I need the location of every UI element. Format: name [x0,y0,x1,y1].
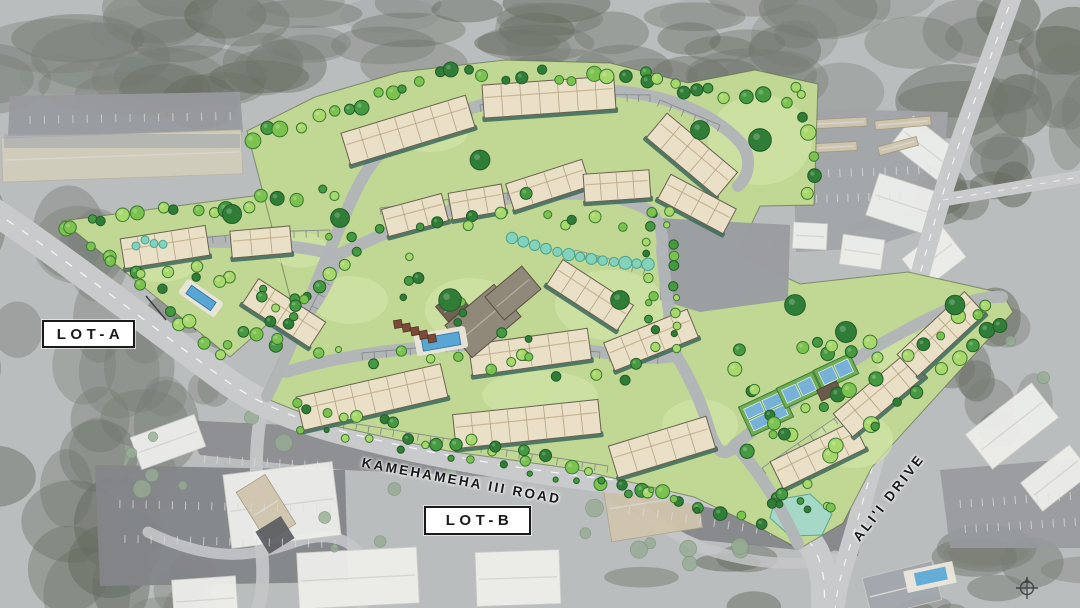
tree-highlight [680,89,684,93]
tree [872,352,883,363]
tree-highlight [753,133,760,140]
tree [664,222,670,228]
tree-highlight [316,112,320,116]
tree-highlight [353,413,357,417]
tree [486,364,497,375]
tree [439,289,461,311]
tree [672,344,680,352]
tree-highlight [781,430,785,434]
tree [198,337,210,349]
tree [430,438,443,451]
teal-shrub [575,252,584,261]
tree [756,87,771,102]
tree [539,449,551,461]
tree [86,242,95,251]
tree-highlight [253,330,257,334]
tree [828,438,843,453]
tree-highlight [389,89,393,93]
tree [665,207,675,217]
tree-highlight [185,317,189,321]
tree [651,73,662,84]
tree [302,405,311,414]
tree-highlight [654,75,657,78]
tree [398,85,406,93]
tree-highlight [867,420,872,425]
tree-highlight [292,302,295,305]
tree [168,205,178,215]
tree-highlight [874,354,877,357]
tree [656,485,670,499]
tree [537,65,546,74]
tree [567,77,576,86]
tree-highlight [831,441,835,445]
tree [756,519,767,530]
tree [470,150,490,170]
tree [767,499,777,509]
tree [871,422,879,430]
tree [331,209,350,228]
tree-highlight [956,354,960,358]
tree [691,84,703,96]
tree-highlight [274,336,277,339]
tree-highlight [246,204,249,207]
tree [290,193,303,206]
tree [555,75,564,84]
tree [414,77,424,87]
tree [448,455,454,461]
tree-highlight [742,93,746,97]
tree [352,247,361,256]
tree-highlight [614,294,620,300]
tree-highlight [804,128,809,133]
tree [194,205,205,216]
tree [671,79,681,89]
tree [631,358,642,369]
tree [718,92,729,103]
teal-shrub [632,259,642,269]
tree [344,104,354,114]
tree [502,76,510,84]
tree [651,342,660,351]
tree [694,507,700,513]
tree [740,90,754,104]
tree [516,72,528,84]
tree [565,460,579,474]
teal-shrub [506,232,518,244]
tree [490,441,501,452]
tree-highlight [840,326,846,332]
tree [527,471,532,476]
tree-highlight [273,194,277,198]
tree [105,256,116,267]
tree [223,340,232,349]
tree [254,189,267,202]
tree [845,346,857,358]
teal-shrub [598,256,607,265]
tree [809,152,819,162]
tree [375,224,384,233]
tree-highlight [982,302,985,305]
tree-highlight [644,490,647,493]
tree-highlight [66,224,70,228]
tree-highlight [904,352,908,356]
tree [351,410,363,422]
tree [863,335,877,349]
tree-highlight [982,326,987,331]
tree [319,185,327,193]
tree [272,121,288,137]
tree-highlight [592,213,596,217]
tree-highlight [240,329,243,332]
tree [673,322,681,330]
tree-highlight [716,509,720,513]
tree [808,169,822,183]
tree [669,282,678,291]
tree [910,386,923,399]
tree [466,434,477,445]
tree-highlight [434,219,437,222]
tree-highlight [622,72,626,76]
tree [130,206,144,220]
building-row [581,170,653,207]
tree [463,221,473,231]
tree [238,326,249,337]
tree [713,507,727,521]
tree-highlight [432,441,436,445]
tree [945,295,965,315]
tree-highlight [316,283,320,287]
tree [158,284,167,293]
tree [567,215,576,224]
tree [645,315,653,323]
tree [620,375,630,385]
tree-highlight [469,213,472,216]
tree-highlight [293,196,297,200]
tree-highlight [133,209,137,213]
tree [454,352,463,361]
tree [813,337,823,347]
tree [782,97,793,108]
tree [244,202,255,213]
tree [257,291,268,302]
tree-highlight [165,269,168,272]
tree [422,441,430,449]
tree [162,266,173,277]
tree [649,487,654,492]
tree [646,222,656,232]
tree [826,340,838,352]
tree [797,90,805,98]
tree [737,511,746,520]
tree-highlight [196,207,199,210]
teal-shrub [150,240,158,248]
tree-highlight [828,343,831,346]
tree [937,332,945,340]
tree [497,328,507,338]
tree-highlight [751,386,754,389]
tree-highlight [644,77,648,81]
tree [296,123,306,133]
tree [768,417,781,430]
tree-highlight [693,86,697,90]
tree [797,498,804,505]
tree-highlight [257,192,261,196]
tree-highlight [316,350,319,353]
tree [691,121,710,140]
tree [734,344,746,356]
tree-highlight [778,491,782,495]
tree-highlight [119,211,123,215]
tree [800,125,815,140]
tree [403,434,414,445]
tree-highlight [226,208,232,214]
tree [166,307,176,317]
tree-highlight [488,366,491,369]
tree-highlight [326,270,330,274]
tree [525,336,532,343]
tree-highlight [913,389,917,393]
cabana [410,327,419,336]
tree [804,506,811,513]
tree [803,480,812,489]
tree [326,233,333,240]
tree-highlight [518,74,522,78]
tree [116,208,130,222]
tree [669,261,679,271]
tree-highlight [633,361,636,364]
tree [776,501,783,508]
tree-highlight [194,263,197,266]
tree-highlight [334,212,340,218]
tree [335,347,341,353]
tree [459,309,467,317]
tree-highlight [810,172,814,176]
tree-highlight [275,124,280,129]
tree [584,467,592,475]
tree [216,350,226,360]
tree-highlight [390,419,393,422]
tree-highlight [415,275,418,278]
tree [365,435,373,443]
tree [265,316,276,327]
tree-highlight [478,72,482,76]
tree [643,250,650,257]
tree [222,204,241,223]
teal-shrub [619,256,632,269]
tree [785,295,806,316]
tree-highlight [845,386,849,390]
tree [245,133,261,149]
tree [673,295,679,301]
tree [645,299,651,305]
tree [182,314,196,328]
tree [290,312,298,320]
tree [443,62,458,77]
tree-highlight [619,482,622,485]
teal-shrub [553,247,562,256]
tree [836,322,857,343]
tree-highlight [996,321,1000,325]
tree [893,398,902,407]
tree [323,409,332,418]
tree [465,65,474,74]
tree-highlight [975,312,978,315]
tree-highlight [590,69,595,74]
tree [426,355,435,364]
tree-highlight [405,436,408,439]
tree [416,223,424,231]
tree [819,403,828,412]
tree [191,261,203,273]
tree [296,426,304,434]
tree [749,384,760,395]
tree [917,338,930,351]
tree [826,503,835,512]
tree-highlight [658,487,662,491]
tree-highlight [357,103,361,107]
tree [313,281,325,293]
tree-highlight [298,125,301,128]
tree-highlight [285,321,288,324]
tree-highlight [137,281,140,284]
tree-highlight [720,94,723,97]
tree [397,446,404,453]
tree [400,294,407,301]
tree-highlight [731,365,735,369]
tree [589,211,601,223]
teal-shrub [586,254,597,265]
tree [64,221,77,234]
tree [272,304,280,312]
tree [778,428,790,440]
tree [902,350,914,362]
tree [801,187,813,199]
tree-highlight [602,72,606,76]
tree [518,445,529,456]
building-row [228,226,294,262]
tree-highlight [259,294,262,297]
tree [647,207,657,217]
site-plan-page: LOT-A LOT-B KAMEHAMEHA III ROAD ALI'I DR… [0,0,1080,608]
tree [617,480,627,490]
tree [330,191,339,200]
tree-highlight [920,340,924,344]
tree [797,342,809,354]
tree [300,295,309,304]
tree [454,319,462,327]
tree-highlight [593,371,596,374]
tree [341,434,349,442]
tree [703,83,713,93]
tree [369,359,379,369]
tree-highlight [161,204,164,207]
cabana [419,330,428,339]
tree [413,272,424,283]
tree [935,363,947,375]
tree-highlight [216,278,220,282]
tree-highlight [332,108,335,111]
tree [396,346,406,356]
tree-highlight [694,124,700,130]
tree [406,253,414,261]
tree [313,109,326,122]
tree [598,477,605,484]
tree [642,238,650,246]
tree-highlight [767,412,770,415]
tree-highlight [175,321,179,325]
tree [776,488,788,500]
tree [801,403,810,412]
tree-highlight [523,190,527,194]
tree [599,69,614,84]
tree [574,478,580,484]
tree [136,269,145,278]
tree-highlight [211,210,214,213]
tree-highlight [938,365,942,369]
tree-highlight [226,274,230,278]
tree-highlight [468,436,471,439]
tree [671,330,677,336]
tree [135,279,146,290]
tree-highlight [443,293,450,300]
tree-highlight [522,458,525,461]
tree [973,310,983,320]
tree [192,273,200,281]
tree-highlight [519,351,522,354]
tree [979,322,995,338]
tree [290,300,301,311]
teal-shrub [541,243,552,254]
tree-highlight [770,419,774,423]
tree [374,88,383,97]
tree-highlight [789,299,795,305]
tree-highlight [267,318,270,321]
tree [551,372,561,382]
tree [591,369,602,380]
tree-highlight [848,348,852,352]
tree [671,308,681,318]
lot-b-label: LOT-B [424,506,531,535]
tree-highlight [833,390,837,394]
tree [728,362,742,376]
tree [158,202,169,213]
teal-shrub [159,240,167,248]
tree-highlight [492,443,495,446]
tree-highlight [521,447,524,450]
roof [230,226,292,258]
tree [339,413,348,422]
tree-highlight [133,269,137,273]
tree [323,267,336,280]
tree-highlight [866,338,870,342]
tree [677,86,690,99]
tree-highlight [736,346,740,350]
tree [293,398,302,407]
tree [270,191,284,205]
tree [96,216,105,225]
tree-highlight [446,65,450,69]
tree-highlight [248,136,253,141]
tree-highlight [743,447,747,451]
teal-shrub [563,249,575,261]
tree [525,353,533,361]
tree-highlight [568,463,572,467]
tree [450,438,462,450]
tree [250,328,263,341]
tree [869,372,883,386]
tree-highlight [872,375,876,379]
tree [432,217,443,228]
